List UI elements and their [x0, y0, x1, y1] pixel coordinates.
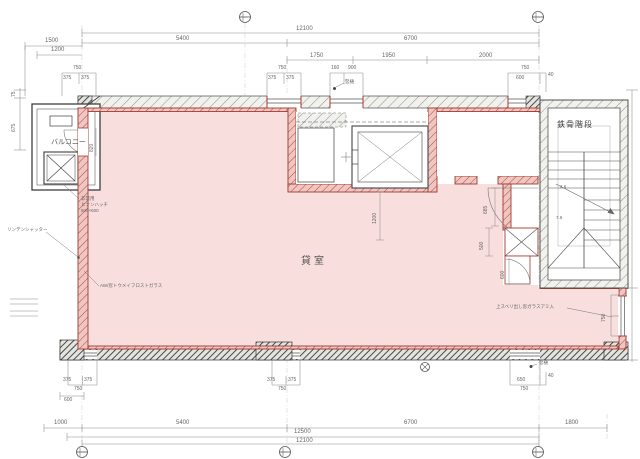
dim-win-f-h2: 375 — [288, 378, 296, 383]
ps-shaft — [505, 228, 538, 256]
room-label-tenant: 貸室 — [301, 257, 327, 267]
room-bottom-line — [88, 346, 618, 349]
core-left-wall — [288, 108, 296, 190]
dim-top-span-right: 6700 — [404, 36, 417, 42]
dim-bottom-total2: 12100 — [296, 438, 313, 444]
dim-win-e-sub: 600 — [64, 398, 72, 403]
note-stair-lower: 7.6 — [556, 216, 562, 221]
core-right-wall — [428, 108, 437, 192]
dim-win-b-h1: 375 — [268, 76, 276, 81]
ps-left-wall — [503, 184, 511, 230]
bottom-wall — [60, 349, 628, 360]
note-stair-upper: 2.6 — [560, 185, 566, 190]
dim-win-a-w: 750 — [73, 66, 81, 71]
floor-plan-drawing — [0, 0, 640, 459]
dim-core-2: 500 — [480, 242, 485, 250]
dim-win-e-h1: 375 — [63, 378, 71, 383]
dims-top — [25, 29, 546, 96]
dim-win-b-h2: 375 — [286, 76, 294, 81]
dim-top-sub2: 1950 — [382, 53, 395, 59]
note-emergency-2: ヒナンハッチ — [81, 203, 108, 208]
grid-bubble — [533, 12, 544, 23]
right-window — [618, 296, 627, 336]
vestibule-wall-b — [498, 176, 538, 184]
grid-bubble — [240, 12, 251, 23]
note-emergency-1: 非常用 — [81, 197, 95, 202]
note-window-right: 上スベリ出し窓ガラスアミ入 — [496, 305, 554, 310]
dim-win-g-p1: 650 — [517, 378, 525, 383]
dim-win-c-p2: 900 — [348, 66, 356, 71]
dims-bottom — [44, 360, 607, 448]
dim-win-f-w: 750 — [278, 387, 286, 392]
dim-win-e-w: 750 — [74, 387, 82, 392]
dim-win-f-h1: 375 — [267, 378, 275, 383]
dim-top-offset-b: 1200 — [51, 47, 64, 53]
dim-left-2: 675 — [12, 124, 17, 132]
dim-win-d-p1: 600 — [516, 76, 524, 81]
dim-win-d-w: 750 — [521, 66, 529, 71]
note-downspout-bottom: 竪樋 — [539, 361, 548, 366]
duct-space — [298, 113, 346, 127]
dim-bottom-span-right: 6700 — [404, 420, 417, 426]
dim-top-sub3: 2000 — [479, 53, 492, 59]
dim-bottom-offset: 1000 — [54, 420, 67, 426]
dim-core-3: 600 — [501, 271, 506, 279]
note-shutter: リンデンシャッター — [7, 228, 48, 233]
dim-core-1: 685 — [484, 206, 489, 214]
dim-top-sub1: 1750 — [310, 53, 323, 59]
dim-win-g-w: 750 — [520, 387, 528, 392]
grid-bubble — [77, 447, 88, 458]
dim-win-e-h2: 375 — [84, 378, 92, 383]
note-downspout-top: 竪樋 — [345, 80, 354, 85]
dim-top-total: 12100 — [296, 26, 313, 32]
vestibule-wall-a — [455, 176, 477, 184]
dim-bottom-total1: 12500 — [294, 429, 311, 435]
dim-win-b-w: 750 — [278, 66, 286, 71]
dim-left-1: 75 — [12, 91, 17, 97]
dim-win-d-p2: 40 — [548, 73, 554, 78]
floor-plan-sheet: 12100 5400 6700 1500 1200 1750 1950 2000… — [0, 0, 640, 459]
column-bottom-mid — [256, 342, 292, 360]
dim-bottom-span-left: 5400 — [176, 420, 189, 426]
dim-bottom-offset-right: 1800 — [565, 420, 578, 426]
dim-win-a-h1: 375 — [63, 76, 71, 81]
grid-bubble — [533, 447, 544, 458]
dim-top-span-left: 5400 — [176, 36, 189, 42]
grid-bubble — [280, 447, 291, 458]
room-label-staircase: 鉄骨階段 — [557, 121, 593, 129]
note-emergency-3: 600×600 — [81, 209, 99, 214]
dim-elevator: 1200 — [373, 213, 378, 224]
dim-win-g-p2: 40 — [548, 374, 554, 379]
room-label-balcony: バルコニー — [51, 139, 86, 146]
elevator-shaft — [341, 126, 428, 188]
dim-right-window: 750 — [602, 314, 607, 322]
service-core — [296, 112, 428, 188]
ps-room — [298, 128, 334, 182]
note-window-left: AW/窓トウメイフロストガラス — [100, 284, 162, 289]
dim-top-offset-a: 1500 — [45, 38, 58, 44]
dim-win-c-p1: 160 — [331, 66, 339, 71]
dim-balcony-door: 820 — [90, 144, 95, 152]
section-marker — [421, 363, 430, 372]
dim-win-a-h2: 375 — [81, 76, 89, 81]
